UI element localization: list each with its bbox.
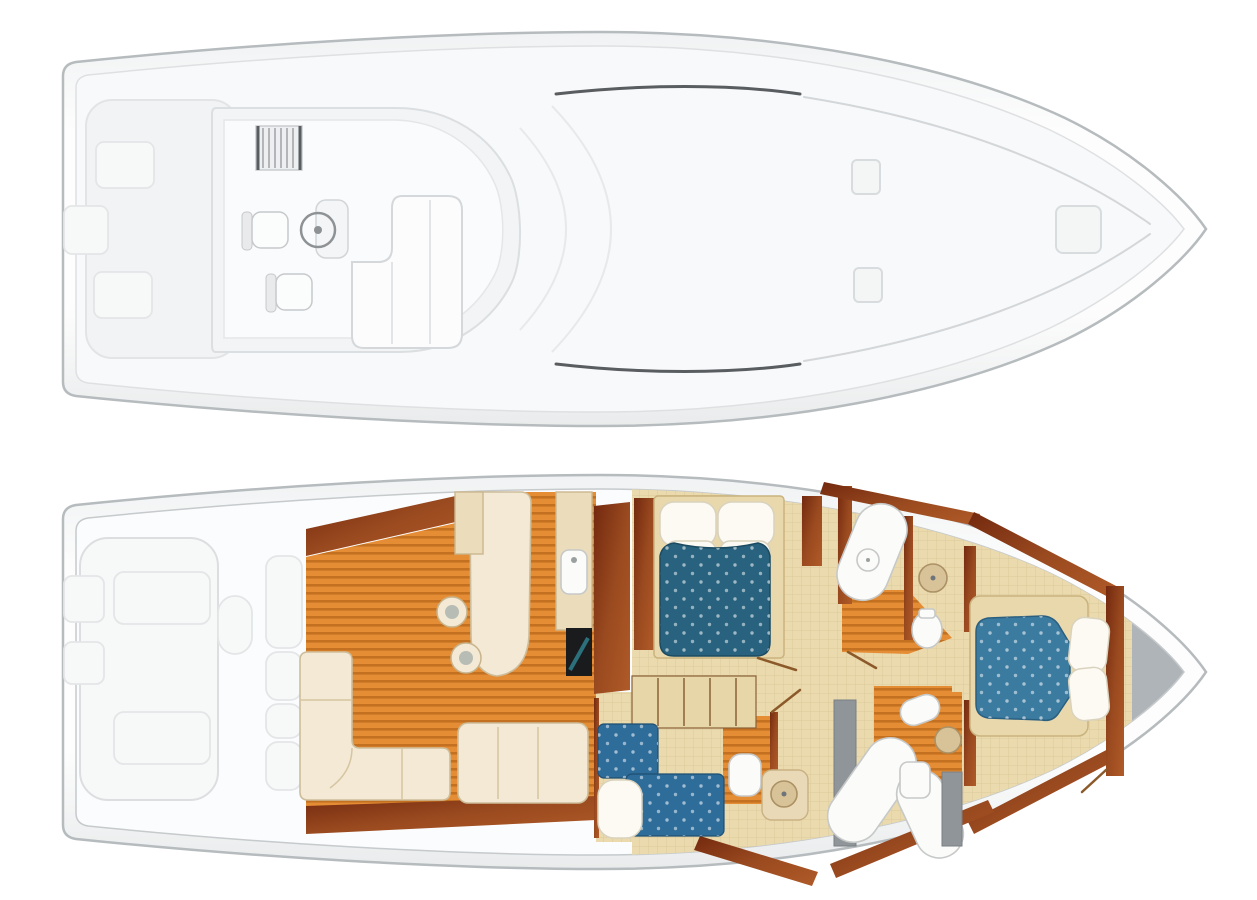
foredeck-hatch-starboard — [854, 268, 882, 302]
bow-island-berth — [976, 616, 1070, 720]
transom-hatch — [64, 642, 104, 684]
mid-head-wall — [770, 712, 778, 770]
cockpit-hatch — [96, 142, 154, 188]
dinette-stool — [437, 597, 467, 627]
galley-sink — [561, 550, 587, 594]
transom-hatch — [64, 576, 104, 622]
foredeck-hatch-center — [1056, 206, 1101, 253]
fish-box-hatch — [114, 572, 210, 624]
yacht-deck-plans-page: Sportfish Yacht Deck Plans — Flybridge a… — [0, 0, 1257, 900]
sink — [935, 727, 961, 753]
foredeck-hatch-port — [852, 160, 880, 194]
helm-seat-port — [242, 212, 288, 250]
guest-pillow — [598, 780, 642, 838]
flybridge — [212, 108, 520, 352]
toilet — [729, 754, 761, 796]
galley-faucet — [571, 557, 577, 563]
cockpit-hatch — [94, 272, 152, 318]
toilet-tank — [919, 609, 935, 618]
master-pillow — [718, 502, 774, 546]
shower-column — [942, 772, 962, 846]
mezzanine-steps — [266, 556, 302, 790]
lower-cockpit — [64, 538, 302, 800]
helm-seat-starboard — [266, 274, 312, 312]
fixture — [900, 762, 930, 798]
bow-pillow — [1067, 616, 1110, 674]
master-pillow — [660, 502, 716, 546]
salon-cabinet — [455, 492, 483, 554]
master-berth — [660, 543, 770, 656]
companionway-stairs — [632, 676, 756, 728]
flybridge-ladder — [256, 126, 302, 170]
yacht-deck-plans-figure: Sportfish Yacht Deck Plans — Flybridge a… — [0, 0, 1257, 900]
flybridge-deck-plan — [63, 32, 1206, 426]
vanity-drain — [866, 558, 870, 562]
settee — [458, 723, 588, 803]
bow-pillow — [1067, 666, 1110, 722]
master-headboard-wall — [634, 498, 654, 650]
fish-box-hatch — [114, 712, 210, 764]
dinette-stool — [451, 643, 481, 673]
accommodation-deck-plan — [60, 460, 1206, 886]
cockpit-hatch — [64, 206, 108, 254]
master-stateroom — [654, 496, 796, 670]
bow-bulkhead — [1106, 586, 1124, 776]
master-fwd-wall — [802, 496, 822, 566]
transom-door — [218, 596, 252, 654]
galley-cabinet — [594, 502, 630, 694]
guest-berth-inboard — [598, 724, 658, 778]
